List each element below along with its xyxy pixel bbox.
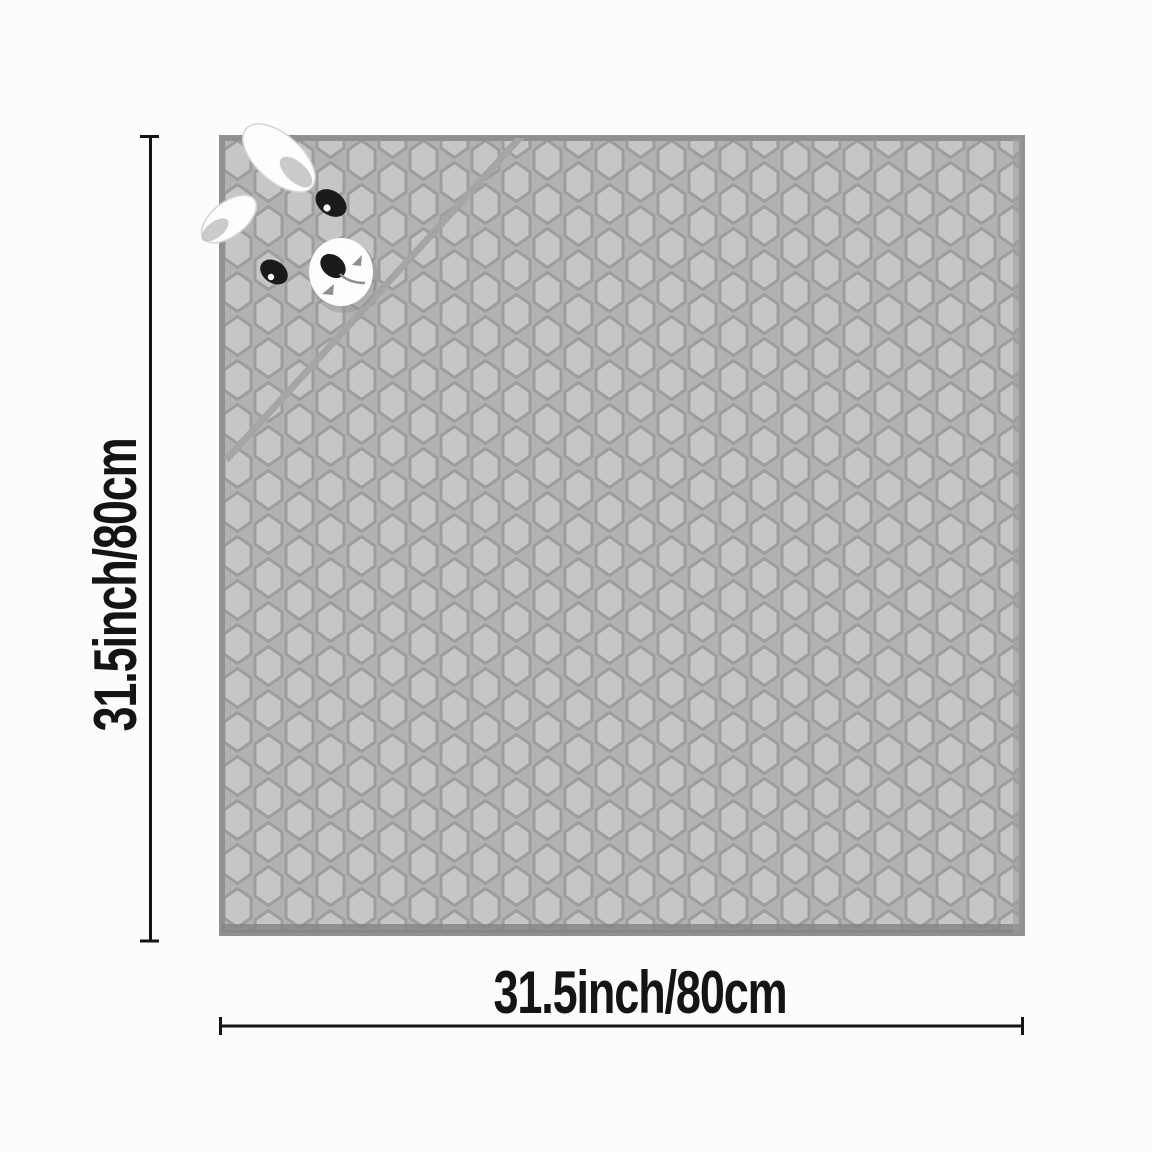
product-dimension-image: 31.5inch/80cm 31.5inch/80cm xyxy=(0,0,1152,1152)
height-dimension-label: 31.5inch/80cm xyxy=(86,438,146,731)
mat xyxy=(193,111,1022,933)
dog-eye-left-highlight xyxy=(268,274,274,280)
mat-bottom-edge xyxy=(222,924,1022,933)
mat-right-edge xyxy=(1013,138,1022,933)
width-dimension-label: 31.5inch/80cm xyxy=(493,963,786,1023)
dog-eye-right-highlight xyxy=(323,204,330,211)
